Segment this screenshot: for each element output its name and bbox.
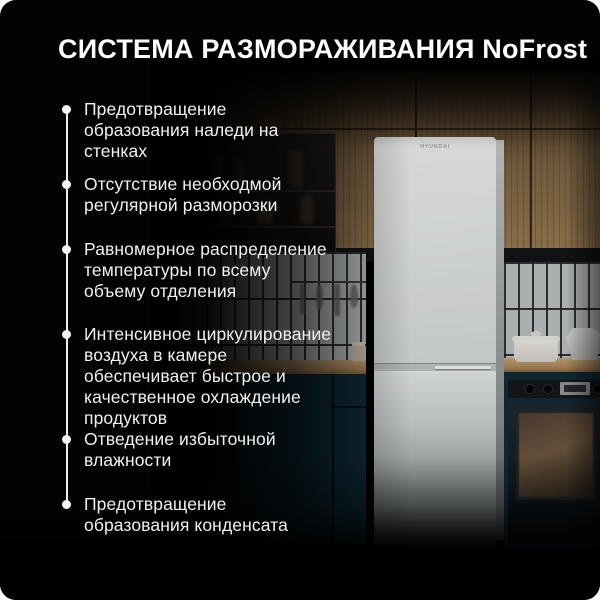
feature-text: Интенсивное циркулирование воздуха в кам… [84,324,334,429]
content-layer: СИСТЕМА РАЗМОРАЖИВАНИЯ NoFrost Предотвра… [0,0,600,600]
bullet-point-icon [62,435,71,444]
bullet-point-icon [62,105,71,114]
page-title: СИСТЕМА РАЗМОРАЖИВАНИЯ NoFrost [58,34,587,65]
feature-text: Предотвращение образования наледи на сте… [84,99,334,162]
bullet-point-icon [62,330,71,339]
feature-item: Предотвращение образования конденсата [58,494,334,536]
feature-item: Предотвращение образования наледи на сте… [58,99,334,162]
feature-text: Отведение избыточной влажности [84,429,334,471]
feature-item: Равномерное распределение температуры по… [58,239,334,302]
feature-item: Отсутствие необходмой регулярной разморо… [58,174,334,216]
bullet-point-icon [62,245,71,254]
feature-text: Отсутствие необходмой регулярной разморо… [84,174,334,216]
bullet-point-icon [62,500,71,509]
feature-text: Равномерное распределение температуры по… [84,239,334,302]
feature-item: Интенсивное циркулирование воздуха в кам… [58,324,334,429]
bullet-point-icon [62,180,71,189]
feature-item: Отведение избыточной влажности [58,429,334,471]
feature-text: Предотвращение образования конденсата [84,494,334,536]
product-card: HYUNDAI СИСТЕМА РАЗМОРАЖИВАНИЯ NoFrost П… [0,0,600,600]
